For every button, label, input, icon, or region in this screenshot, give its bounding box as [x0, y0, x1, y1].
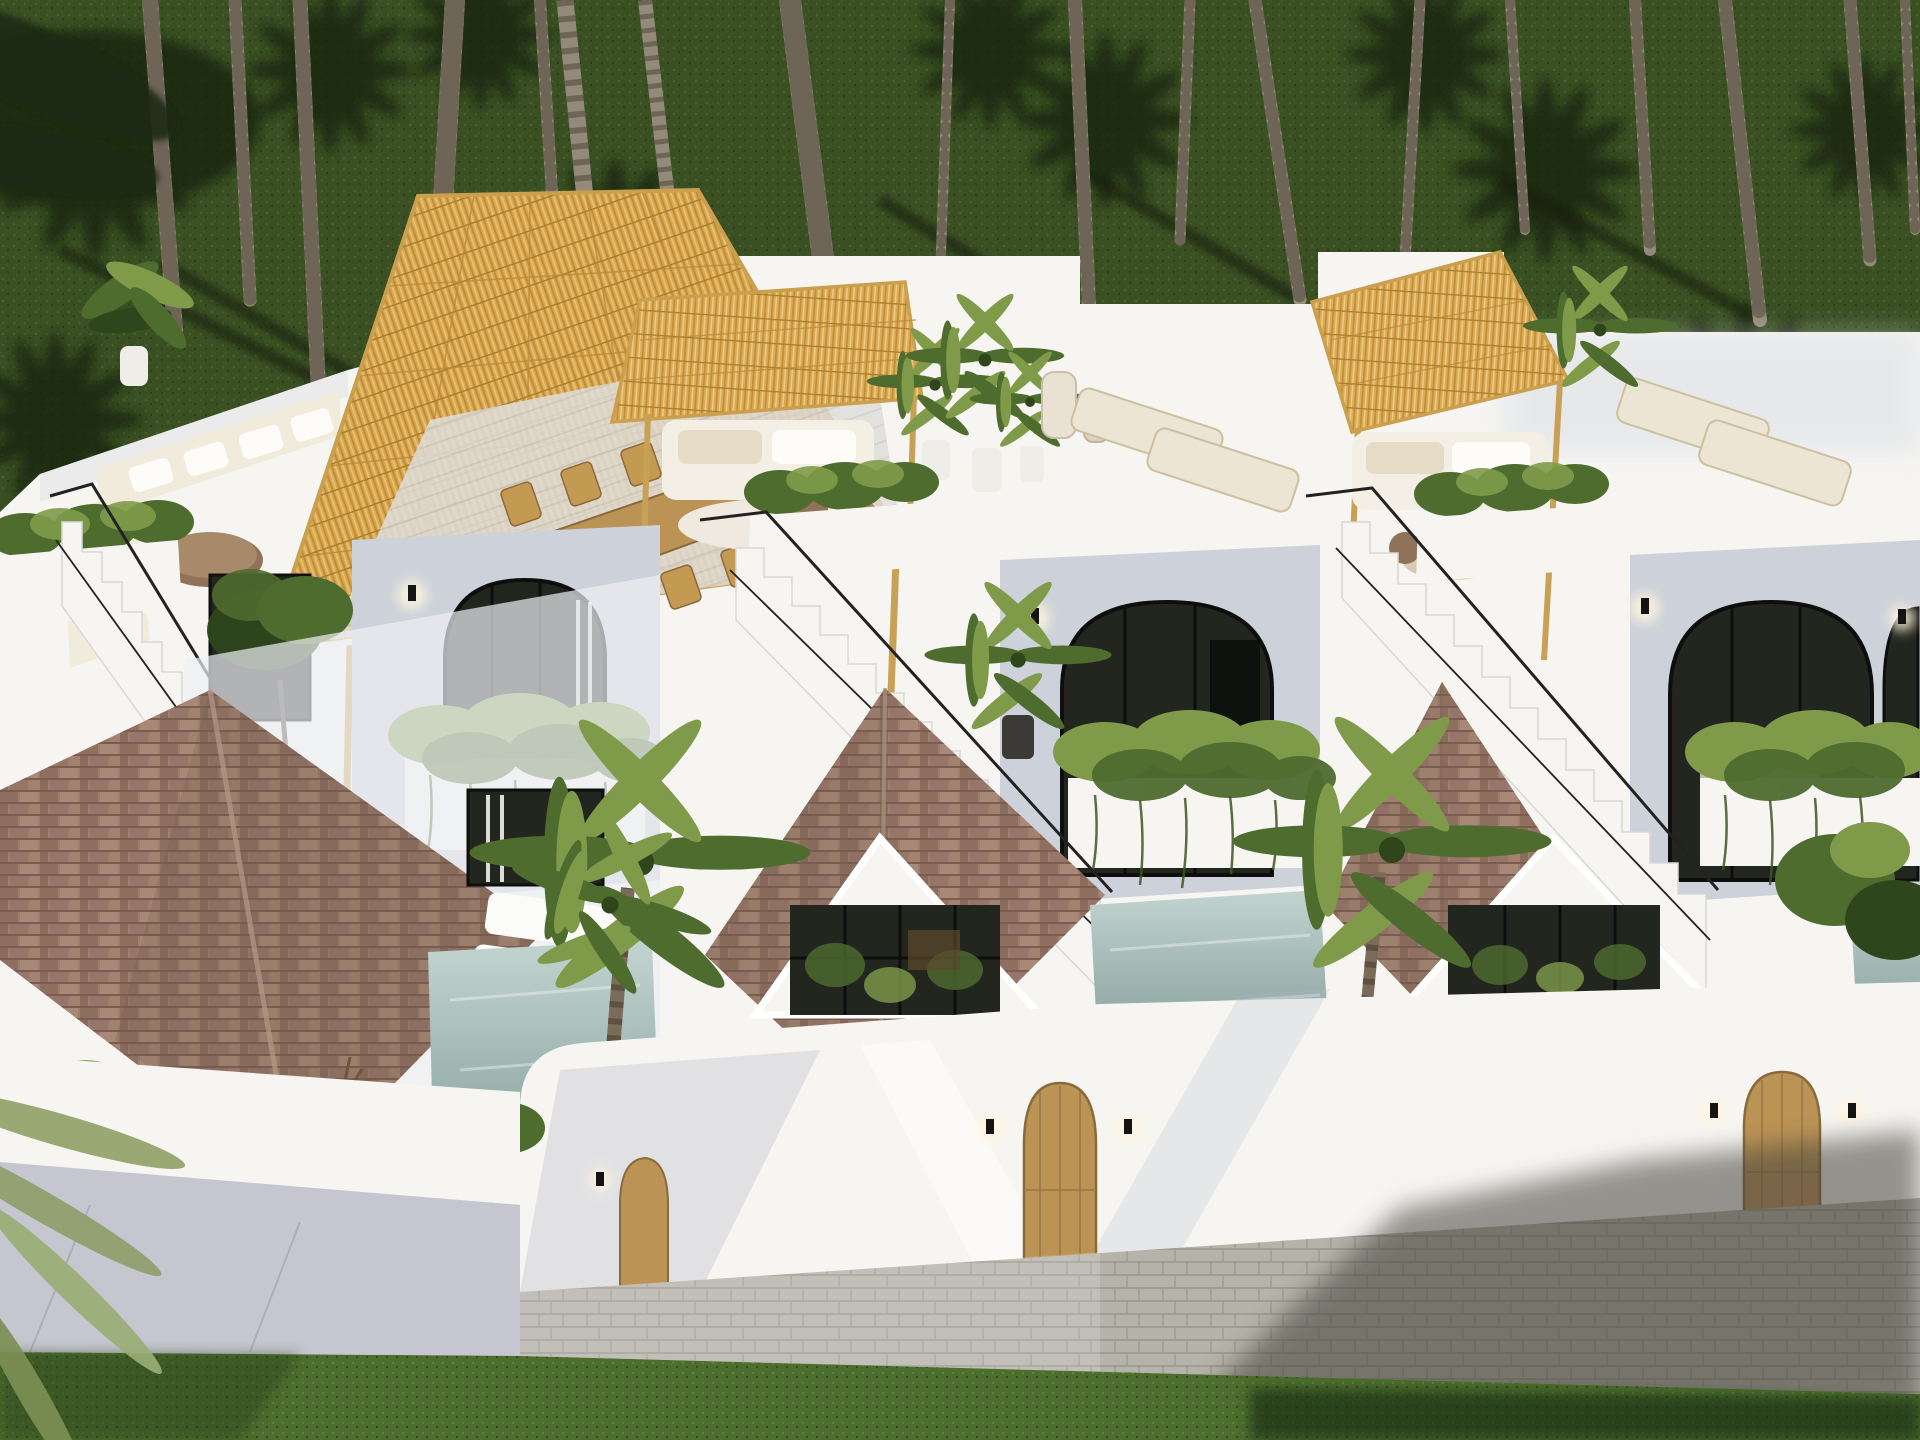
- planter-hedge-right: [1414, 462, 1614, 582]
- plant-pot: [120, 346, 148, 386]
- render-image: [0, 0, 1920, 1440]
- vine-balcony-middle: [1053, 710, 1336, 888]
- villa-scene: [0, 0, 1920, 1440]
